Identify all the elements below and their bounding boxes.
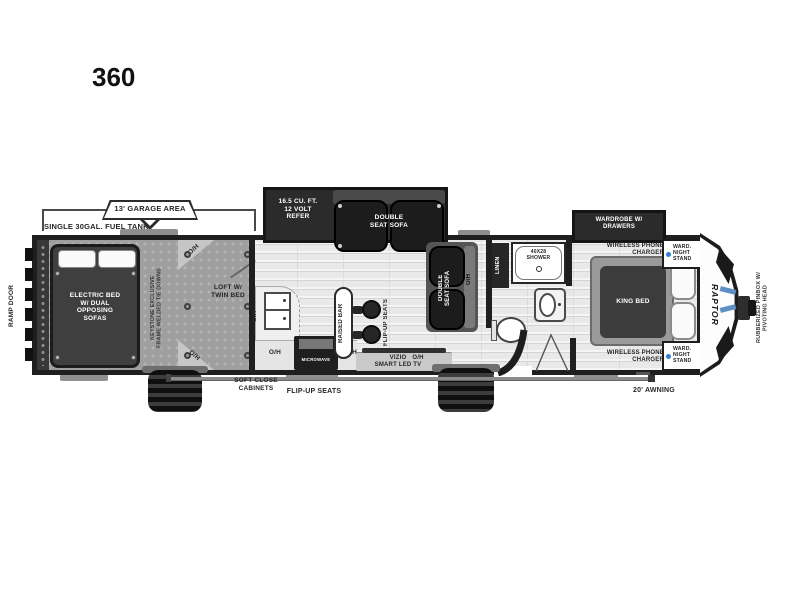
bed-bolt: [55, 271, 60, 276]
awning-end: [166, 374, 171, 382]
ramp-door-label: RAMP DOOR: [8, 275, 20, 337]
step-rail: [60, 374, 108, 381]
shower-drain-icon: [536, 266, 542, 272]
wireless-charger-label: WIRELESS PHONE CHARGER: [592, 350, 664, 364]
flip-up-seats-label: FLIP-UP SEATS: [383, 290, 397, 354]
entry-door: [488, 326, 580, 376]
ramp-latch: [25, 328, 33, 341]
kitchen-sink-divider: [266, 309, 289, 311]
charger-indicator-dot: [666, 252, 671, 257]
tie-down-ring: [184, 303, 191, 310]
pinbox-head: [748, 300, 756, 316]
keystone-tiedowns-label: KEYSTONE EXCLUSIVE FRAME WELDED TIE DOWN…: [150, 252, 168, 364]
model-number: 360: [92, 62, 135, 93]
bed-bolt: [131, 355, 136, 360]
awning-label: 20' AWNING: [618, 387, 690, 395]
raptor-logo: RAPTOR: [704, 272, 720, 338]
tie-down-ring: [184, 352, 191, 359]
flip-up-seats-bottom-label: FLIP-UP SEATS: [282, 388, 346, 396]
microwave-label: MICROWAVE: [294, 358, 338, 363]
loft-label: LOFT W/ TWIN BED: [206, 284, 250, 299]
bar-stool: [362, 300, 381, 319]
ramp-latch: [25, 348, 33, 361]
sofa-bolt: [338, 244, 342, 248]
bath-wall-right: [566, 240, 572, 286]
shower-label: 40X28 SHOWER: [516, 250, 561, 262]
ramp-latch: [25, 288, 33, 301]
wheel: [438, 368, 494, 412]
charger-indicator-dot: [666, 354, 671, 359]
bed-pillow: [58, 250, 96, 268]
soft-close-cabinets-label: SOFT CLOSE CABINETS: [228, 377, 284, 392]
king-bed: KING BED: [600, 266, 666, 338]
overhead-cabinet-label: O/H: [262, 349, 288, 357]
ramp-door-hinge: [40, 244, 46, 366]
wardrobe-label: WARDROBE W/ DRAWERS: [576, 217, 662, 231]
nightstand: WARD. NIGHT STAND: [662, 239, 704, 269]
sofa-bolt: [338, 204, 342, 208]
bed-pillow: [98, 250, 136, 268]
raised-bar-label: RAISED BAR: [338, 292, 349, 354]
bathroom-sink: [539, 293, 556, 317]
bed-bolt: [55, 355, 60, 360]
tie-down-ring: [184, 251, 191, 258]
faucet-dot: [558, 303, 561, 306]
linen-label: LINEN: [495, 247, 506, 284]
overhead-cabinet-label: O/H: [408, 355, 428, 362]
garage-area-label: 13' GARAGE AREA: [104, 205, 196, 214]
nightstand: WARD. NIGHT STAND: [662, 341, 704, 371]
bed-bolt: [131, 271, 136, 276]
faucet-dot: [283, 317, 286, 320]
ramp-latch: [25, 308, 33, 321]
nightstand-label: WARD. NIGHT STAND: [673, 347, 691, 364]
faucet-dot: [283, 299, 286, 302]
cooktop: [299, 339, 333, 349]
double-seat-sofa-label: DOUBLE SEAT SOFA: [336, 214, 442, 229]
refrigerator-label: 16.5 CU. FT. 12 VOLT REFER: [268, 198, 328, 221]
pinbox-label: RUBBERIZED PINBOX W/ PIVOTING HEAD: [756, 246, 774, 370]
kitchen-sink: [264, 292, 291, 330]
floorplan-canvas: 360 13' GARAGE AREA SINGLE 30GAL. FUEL T…: [0, 0, 800, 600]
awning-end: [648, 375, 655, 382]
ramp-latch: [25, 248, 33, 261]
overhead-cabinet-label: O/H: [466, 268, 477, 290]
nightstand-label: WARD. NIGHT STAND: [673, 245, 691, 262]
double-seat-sofa-label: DOUBLE SEAT SOFA: [438, 252, 456, 324]
bed-pillow: [670, 302, 696, 340]
garage-bracket-end-right: [254, 209, 256, 231]
overhead-cabinet-label: O/H: [252, 302, 263, 330]
tv-screen: [362, 348, 446, 353]
ramp-latch: [25, 268, 33, 281]
king-bed-label: KING BED: [616, 298, 649, 306]
bar-stool: [362, 325, 381, 344]
sofa-bolt: [437, 204, 441, 208]
electric-bed-label: ELECTRIC BED W/ DUAL OPPOSING SOFAS: [62, 292, 128, 323]
